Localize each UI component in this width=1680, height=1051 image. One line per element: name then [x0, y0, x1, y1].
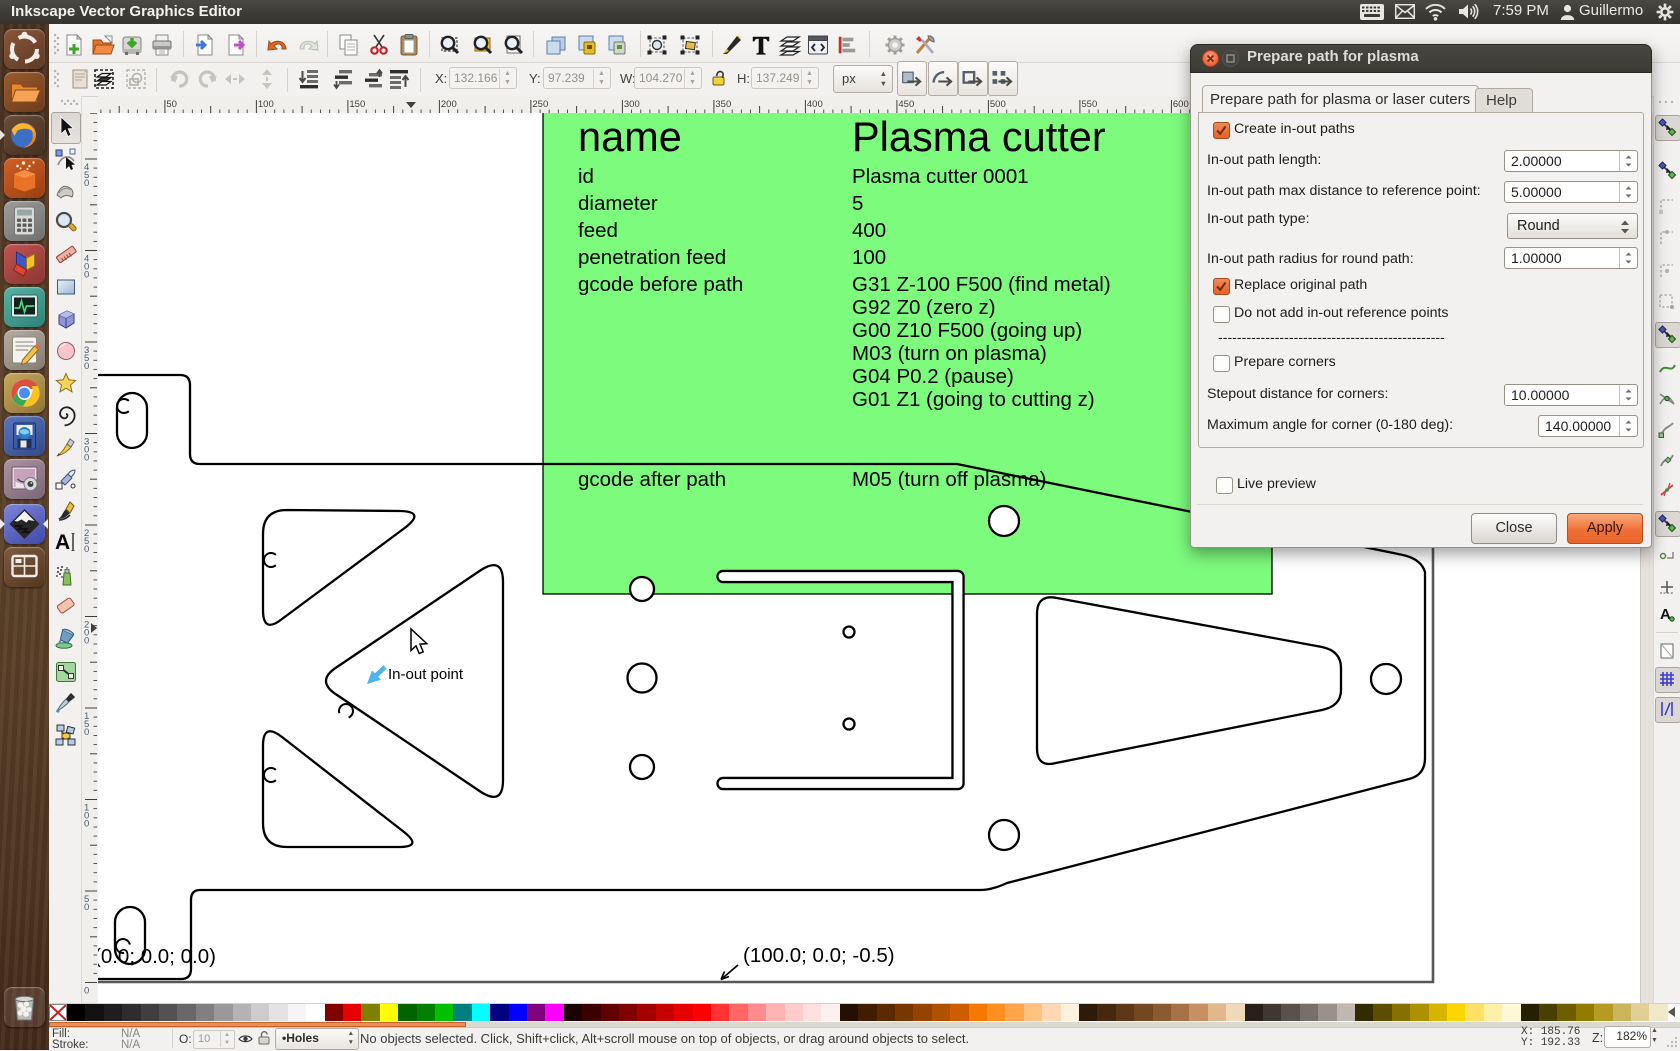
svg-text:0: 0 [84, 453, 89, 464]
svg-text:G01 Z1 (going to cutting z): G01 Z1 (going to cutting z) [852, 388, 1095, 411]
svg-text:0: 0 [84, 902, 89, 913]
svg-text:100: 100 [258, 99, 274, 110]
svg-text:0: 0 [84, 819, 89, 830]
svg-text:250: 250 [532, 99, 548, 110]
svg-text:M05 (turn off plasma): M05 (turn off plasma) [852, 468, 1046, 491]
svg-text:300: 300 [624, 99, 640, 110]
svg-text:penetration feed: penetration feed [578, 246, 726, 269]
svg-text:A: A [1660, 606, 1671, 623]
svg-text:G04 P0.2 (pause): G04 P0.2 (pause) [852, 365, 1014, 388]
svg-text:50: 50 [166, 99, 177, 110]
svg-text:G31 Z-100 F500 (find metal): G31 Z-100 F500 (find metal) [852, 273, 1111, 296]
svg-text:(0.0; 0.0; 0.0): (0.0; 0.0; 0.0) [98, 945, 216, 968]
svg-text:400: 400 [852, 219, 886, 242]
svg-text:0: 0 [84, 544, 89, 555]
svg-text:0: 0 [84, 270, 89, 281]
svg-text:600: 600 [1173, 99, 1189, 110]
svg-text:550: 550 [1081, 99, 1097, 110]
svg-text:100: 100 [852, 246, 886, 269]
svg-text:400: 400 [807, 99, 823, 110]
svg-text:0: 0 [84, 986, 89, 997]
svg-text:350: 350 [715, 99, 731, 110]
svg-text:450: 450 [898, 99, 914, 110]
svg-text:0: 0 [84, 636, 89, 647]
svg-text:M03 (turn on plasma): M03 (turn on plasma) [852, 342, 1047, 365]
svg-text:200: 200 [441, 99, 457, 110]
svg-text:150: 150 [349, 99, 365, 110]
svg-text:gcode before path: gcode before path [578, 273, 743, 296]
svg-text:0: 0 [84, 361, 89, 372]
svg-text:In-out point: In-out point [388, 666, 464, 683]
svg-text:(100.0; 0.0; -0.5): (100.0; 0.0; -0.5) [743, 944, 895, 967]
svg-text:Plasma cutter 0001: Plasma cutter 0001 [852, 165, 1029, 188]
svg-text:name: name [578, 113, 682, 160]
svg-text:0: 0 [84, 727, 89, 738]
svg-text:gcode after path: gcode after path [578, 468, 726, 491]
svg-text:diameter: diameter [578, 192, 658, 215]
svg-text:0: 0 [84, 178, 89, 189]
svg-text:500: 500 [990, 99, 1006, 110]
svg-text:G92 Z0 (zero z): G92 Z0 (zero z) [852, 296, 996, 319]
svg-text:Plasma cutter: Plasma cutter [852, 113, 1106, 160]
svg-text:G00 Z10 F500 (going up): G00 Z10 F500 (going up) [852, 319, 1082, 342]
svg-text:feed: feed [578, 219, 618, 242]
svg-text:id: id [578, 165, 594, 188]
svg-text:A: A [55, 531, 70, 554]
svg-text:5: 5 [852, 192, 863, 215]
